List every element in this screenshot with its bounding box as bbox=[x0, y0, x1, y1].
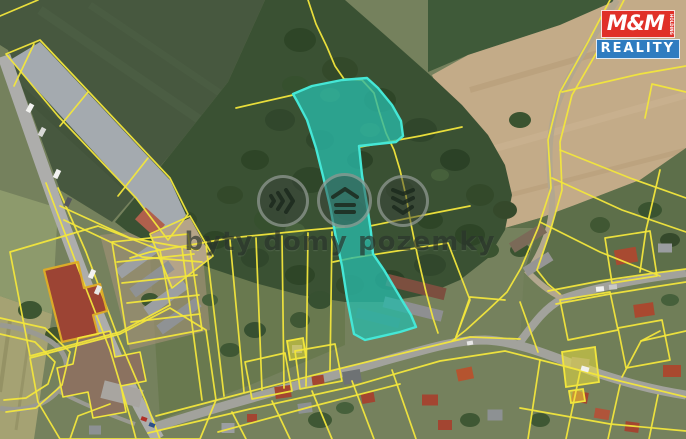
yellow-filled-parcel bbox=[562, 347, 599, 387]
yellow-filled-parcel bbox=[569, 389, 585, 403]
logo-mm-box: M&M HOLDING bbox=[601, 10, 675, 38]
land-layers-icon bbox=[377, 175, 429, 227]
logo-mm-text: M&M bbox=[607, 11, 664, 35]
map-image[interactable]: byty domy pozemky M&M HOLDING REALITY bbox=[0, 0, 686, 439]
logo-reality-text: REALITY bbox=[596, 39, 680, 59]
mm-reality-logo: M&M HOLDING REALITY bbox=[596, 10, 680, 59]
flats-chevrons-icon bbox=[257, 175, 309, 227]
yellow-filled-parcel bbox=[287, 338, 306, 360]
logo-holding-text: HOLDING bbox=[669, 14, 673, 35]
house-roof-icon bbox=[317, 173, 372, 228]
watermark-text: byty domy pozemky bbox=[170, 227, 510, 257]
